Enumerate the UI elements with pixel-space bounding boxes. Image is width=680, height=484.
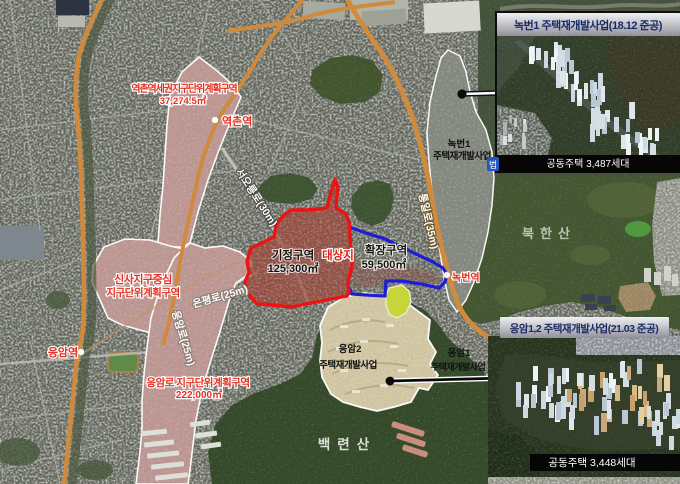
svg-text:기정구역: 기정구역 bbox=[272, 248, 314, 262]
svg-text:주택재개발사업: 주택재개발사업 bbox=[319, 359, 377, 371]
svg-text:녹번1 주택재개발사업(18.12 준공): 녹번1 주택재개발사업(18.12 준공) bbox=[514, 18, 663, 32]
svg-text:222,000㎡: 222,000㎡ bbox=[176, 388, 222, 401]
svg-text:주택재개발사업: 주택재개발사업 bbox=[431, 361, 486, 372]
svg-text:북한산: 북한산 bbox=[522, 226, 576, 241]
svg-text:확장구역: 확장구역 bbox=[365, 243, 407, 257]
svg-text:37,274.5㎡: 37,274.5㎡ bbox=[160, 95, 207, 107]
svg-text:주택재개발사업: 주택재개발사업 bbox=[433, 150, 491, 162]
svg-text:백련산: 백련산 bbox=[318, 436, 376, 452]
svg-text:125,300㎡: 125,300㎡ bbox=[268, 261, 319, 275]
svg-text:응암역: 응암역 bbox=[48, 345, 78, 359]
svg-text:역촌역세권지구단위계획구역: 역촌역세권지구단위계획구역 bbox=[131, 82, 237, 95]
svg-text:신사지구중심: 신사지구중심 bbox=[114, 272, 172, 286]
svg-text:응암1,2 주택재개발사업(21.03 준공): 응암1,2 주택재개발사업(21.03 준공) bbox=[510, 322, 658, 335]
svg-text:지구단위계획구역: 지구단위계획구역 bbox=[106, 286, 179, 299]
svg-text:공동주택 3,487세대: 공동주택 3,487세대 bbox=[546, 158, 629, 170]
svg-text:응암로 지구단위계획구역: 응암로 지구단위계획구역 bbox=[146, 376, 249, 389]
svg-text:녹번1: 녹번1 bbox=[448, 138, 471, 150]
svg-text:59,500㎡: 59,500㎡ bbox=[362, 257, 407, 271]
svg-text:녹번역: 녹번역 bbox=[452, 271, 480, 284]
svg-text:역촌역: 역촌역 bbox=[222, 114, 252, 128]
svg-text:응암1: 응암1 bbox=[448, 347, 471, 359]
svg-text:응암2: 응암2 bbox=[339, 343, 362, 355]
svg-text:대상지: 대상지 bbox=[322, 248, 354, 262]
svg-text:법: 법 bbox=[489, 160, 497, 170]
svg-text:공동주택 3,448세대: 공동주택 3,448세대 bbox=[548, 457, 635, 469]
